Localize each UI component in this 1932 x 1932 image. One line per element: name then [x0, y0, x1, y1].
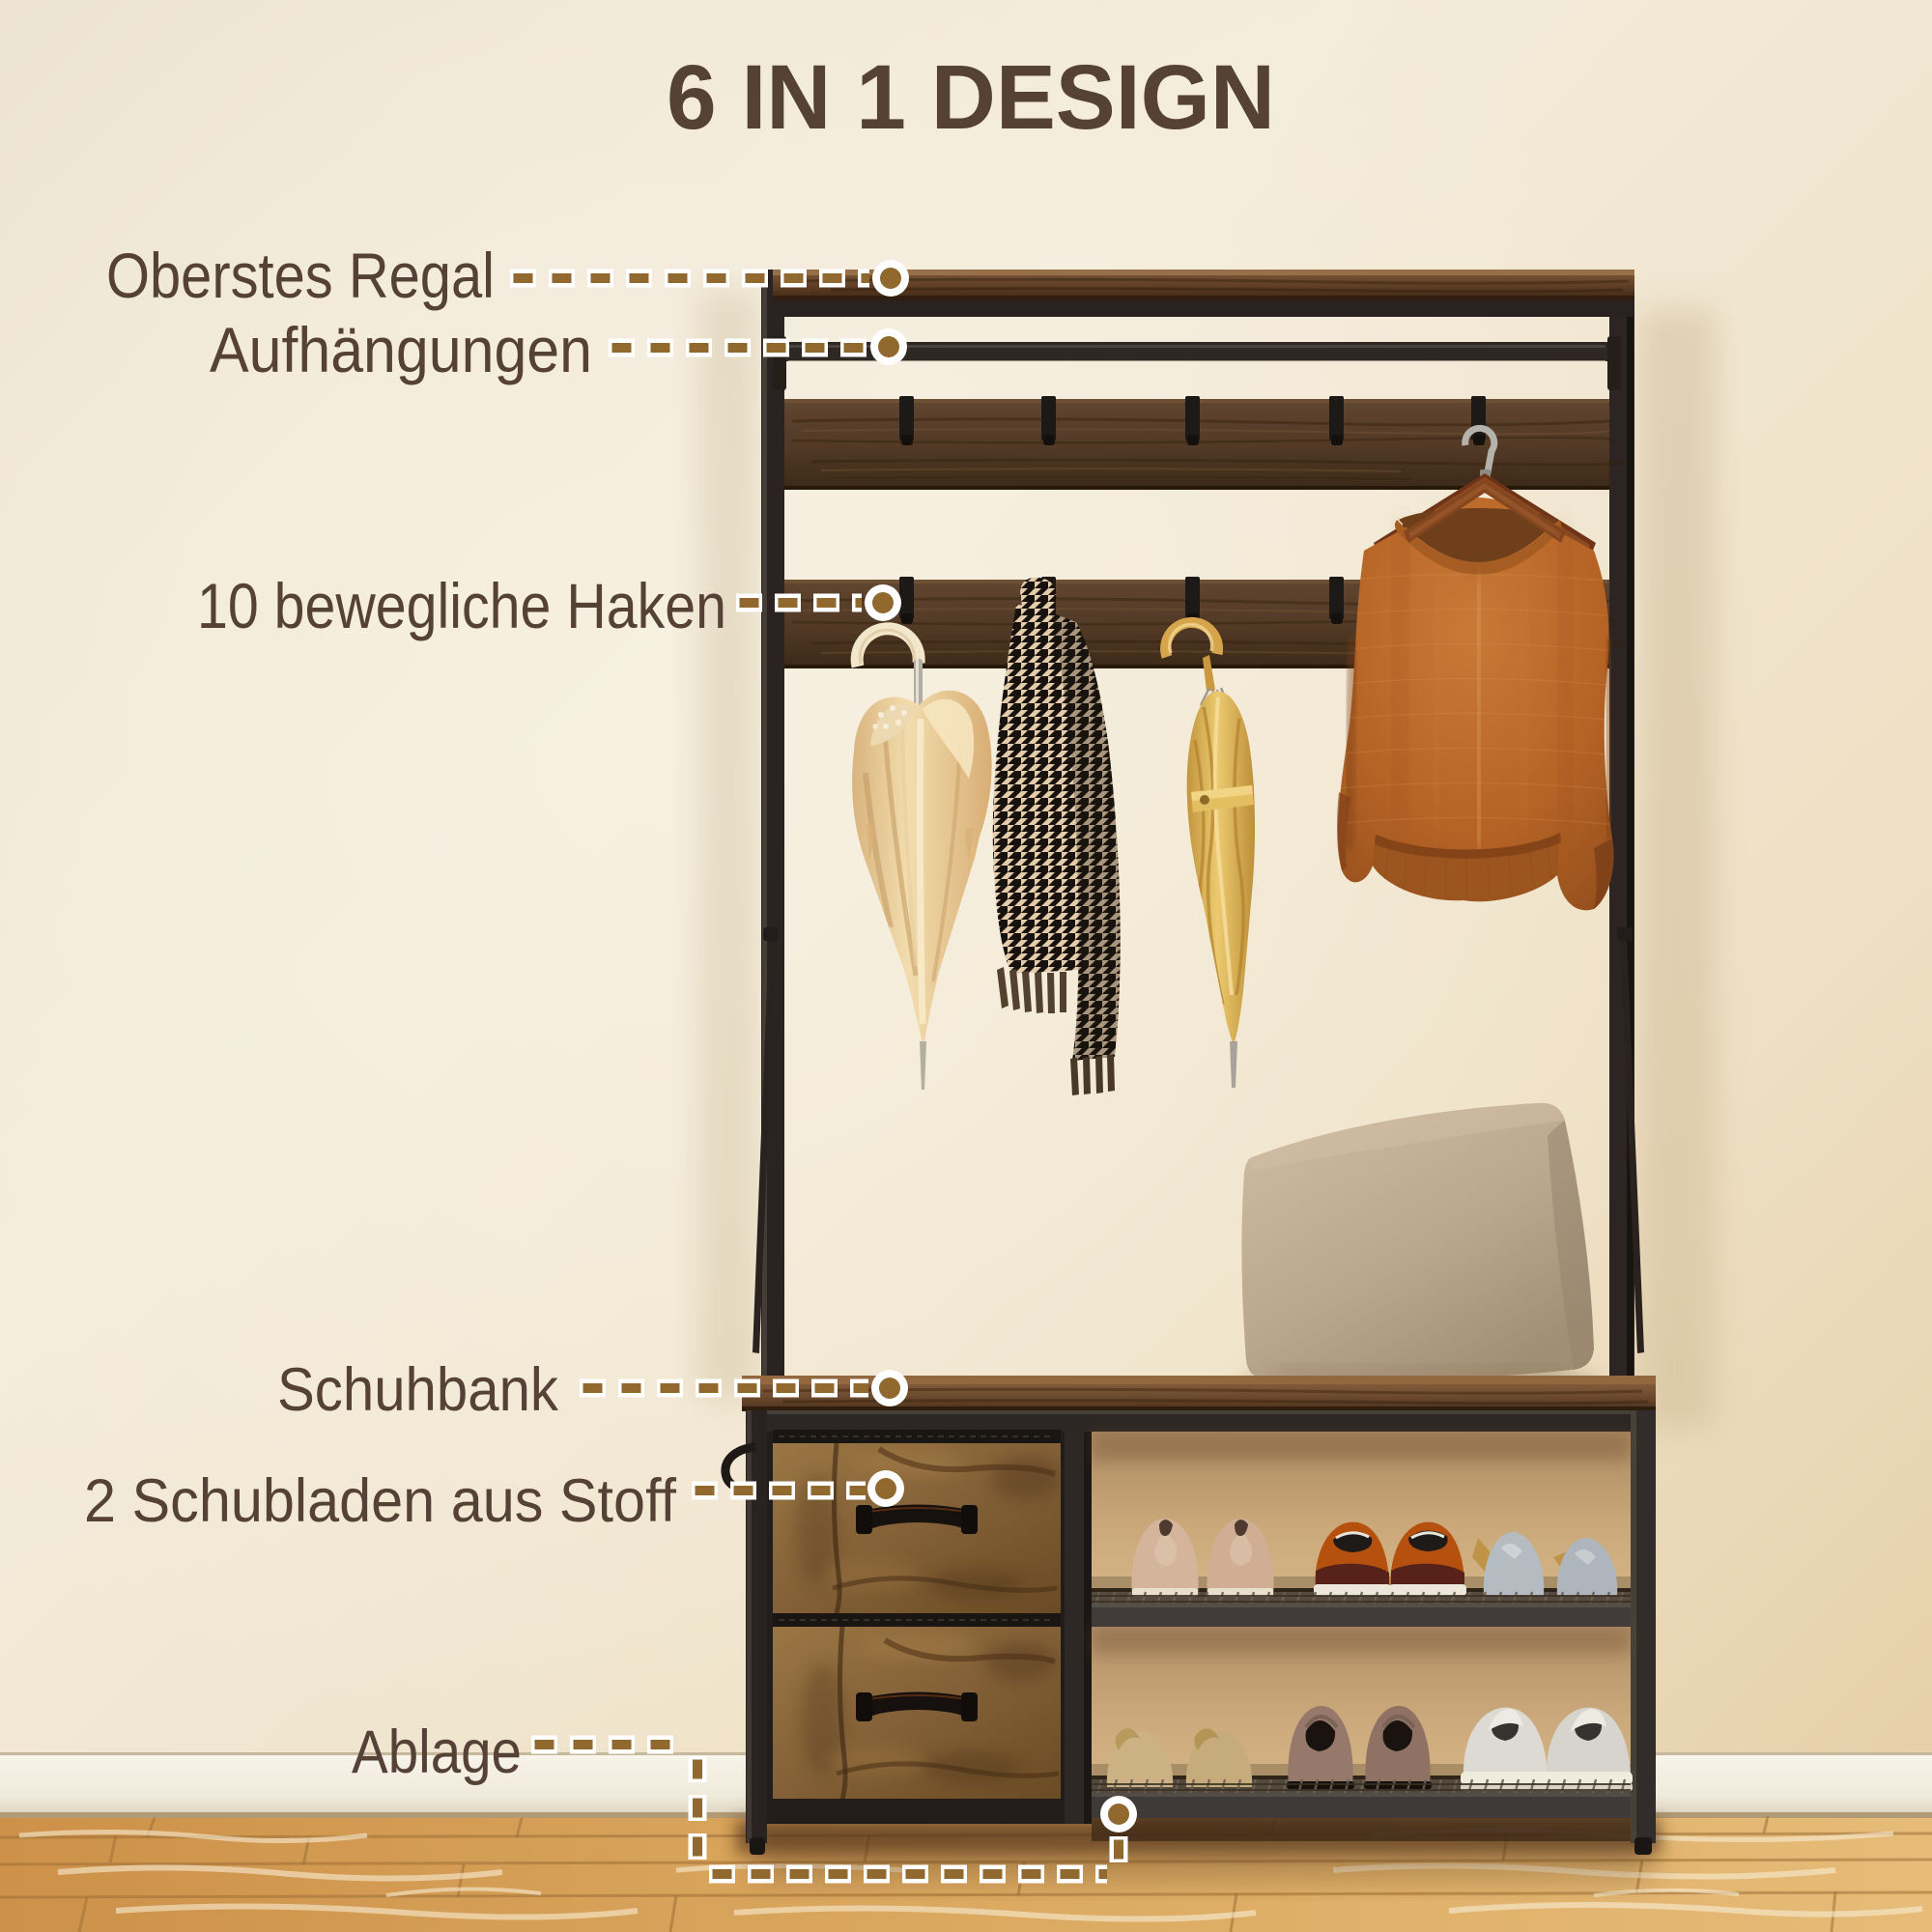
- svg-text:Ablage: Ablage: [352, 1719, 522, 1786]
- svg-text:Oberstes Regal: Oberstes Regal: [106, 240, 495, 311]
- svg-text:Schuhbank: Schuhbank: [277, 1356, 558, 1424]
- svg-text:2 Schubladen aus Stoff: 2 Schubladen aus Stoff: [84, 1467, 676, 1535]
- svg-text:6 IN 1 DESIGN: 6 IN 1 DESIGN: [667, 46, 1275, 149]
- svg-text:10 bewegliche Haken: 10 bewegliche Haken: [197, 570, 726, 641]
- svg-text:Aufhängungen: Aufhängungen: [210, 314, 592, 385]
